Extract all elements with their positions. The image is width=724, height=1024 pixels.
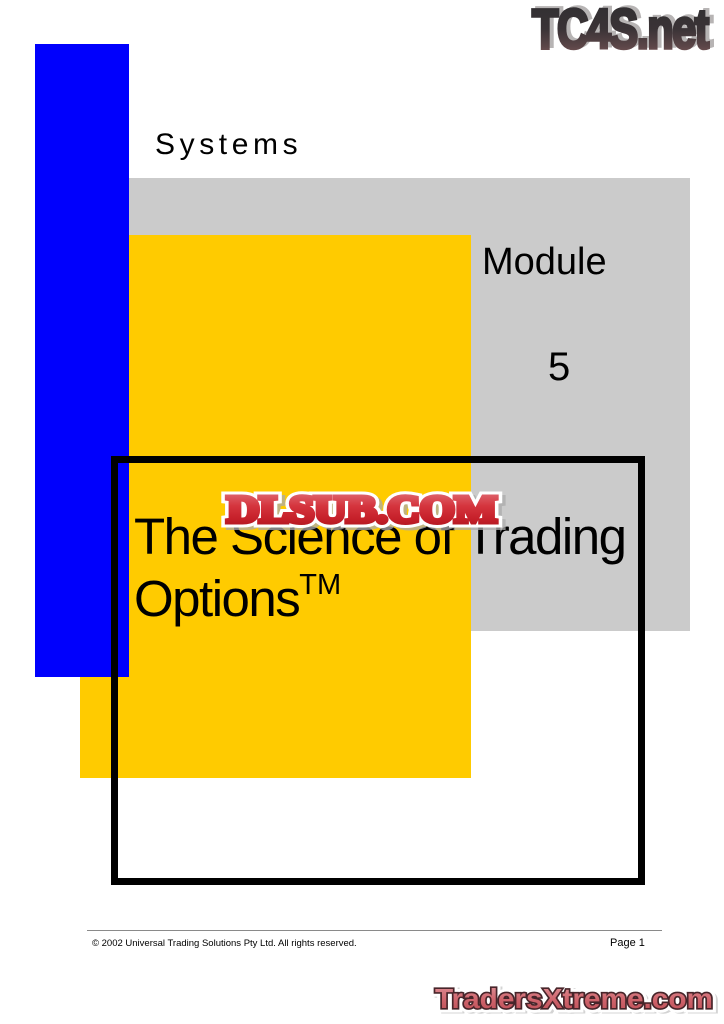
svg-text:DLSUB.COM: DLSUB.COM [227, 489, 497, 531]
svg-text:TC4S.net: TC4S.net [532, 0, 709, 56]
svg-text:TradersXtreme.com: TradersXtreme.com [435, 983, 713, 1014]
